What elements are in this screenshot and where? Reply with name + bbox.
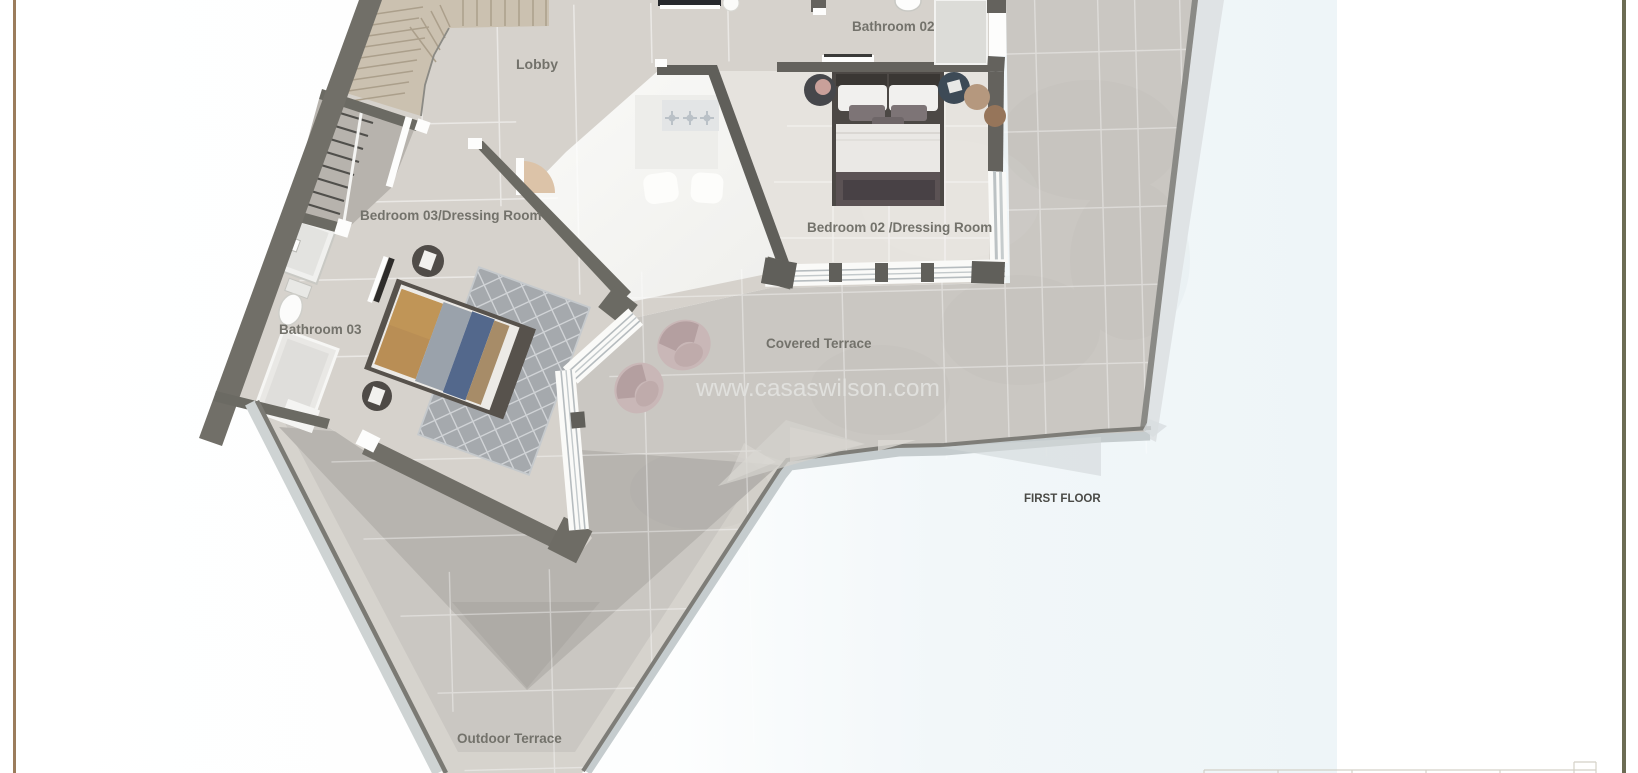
svg-text:Lobby: Lobby	[516, 56, 558, 72]
svg-text:FIRST FLOOR: FIRST FLOOR	[1024, 493, 1101, 505]
svg-text:Bathroom 03: Bathroom 03	[279, 322, 362, 337]
svg-text:Bathroom 02: Bathroom 02	[852, 19, 935, 34]
svg-text:Covered Terrace: Covered Terrace	[766, 336, 872, 351]
svg-text:www.casaswilson.com: www.casaswilson.com	[695, 375, 940, 402]
svg-text:Bedroom 02 /Dressing Room: Bedroom 02 /Dressing Room	[807, 220, 992, 235]
svg-text:Bedroom 03/Dressing Room: Bedroom 03/Dressing Room	[360, 208, 542, 223]
svg-text:Outdoor Terrace: Outdoor Terrace	[457, 731, 562, 746]
